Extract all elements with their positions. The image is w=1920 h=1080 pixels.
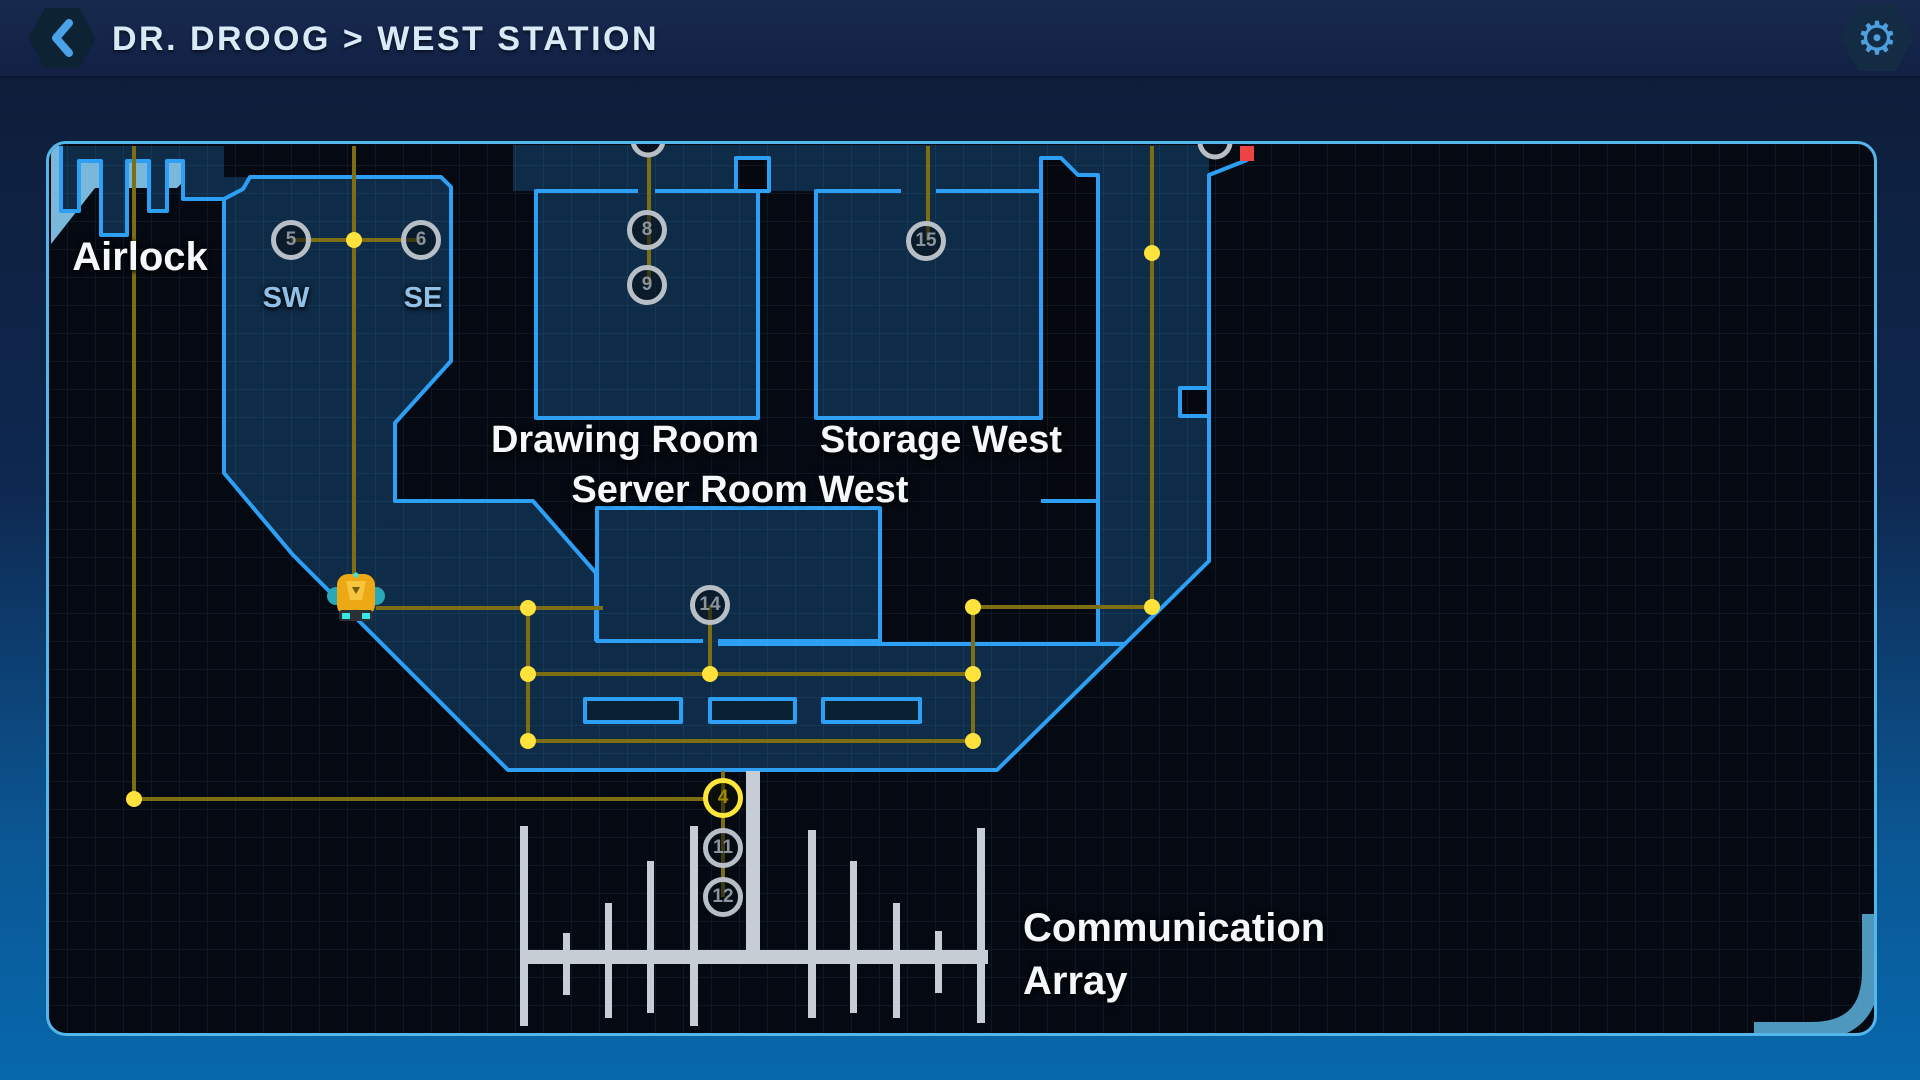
waypoint-15[interactable]: 15 [906, 221, 946, 261]
map-canvas [49, 144, 1877, 1036]
waypoint-8[interactable]: 8 [627, 210, 667, 250]
map-grid [49, 144, 1877, 1036]
waypoint-14[interactable]: 14 [690, 585, 730, 625]
waypoint-9[interactable]: 9 [627, 265, 667, 305]
chevron-left-icon [45, 18, 79, 58]
station-map[interactable]: Airlock SW SE Drawing Room Storage West … [46, 141, 1877, 1036]
waypoint-11[interactable]: 11 [703, 828, 743, 868]
back-button[interactable] [28, 8, 96, 68]
console-3 [823, 699, 920, 722]
waypoint-5[interactable]: 5 [271, 220, 311, 260]
waypoint-6[interactable]: 6 [401, 220, 441, 260]
console-2 [710, 699, 795, 722]
waypoint-12[interactable]: 12 [703, 877, 743, 917]
alert-marker [1240, 146, 1254, 161]
settings-button[interactable]: ⚙ [1840, 5, 1914, 71]
waypoint-4-selected[interactable]: 4 [703, 778, 743, 818]
console-1 [585, 699, 681, 722]
page-title: DR. DROOG > WEST STATION [112, 20, 659, 59]
gear-icon: ⚙ [1856, 15, 1897, 61]
top-bar: DR. DROOG > WEST STATION ⚙ [0, 0, 1920, 78]
